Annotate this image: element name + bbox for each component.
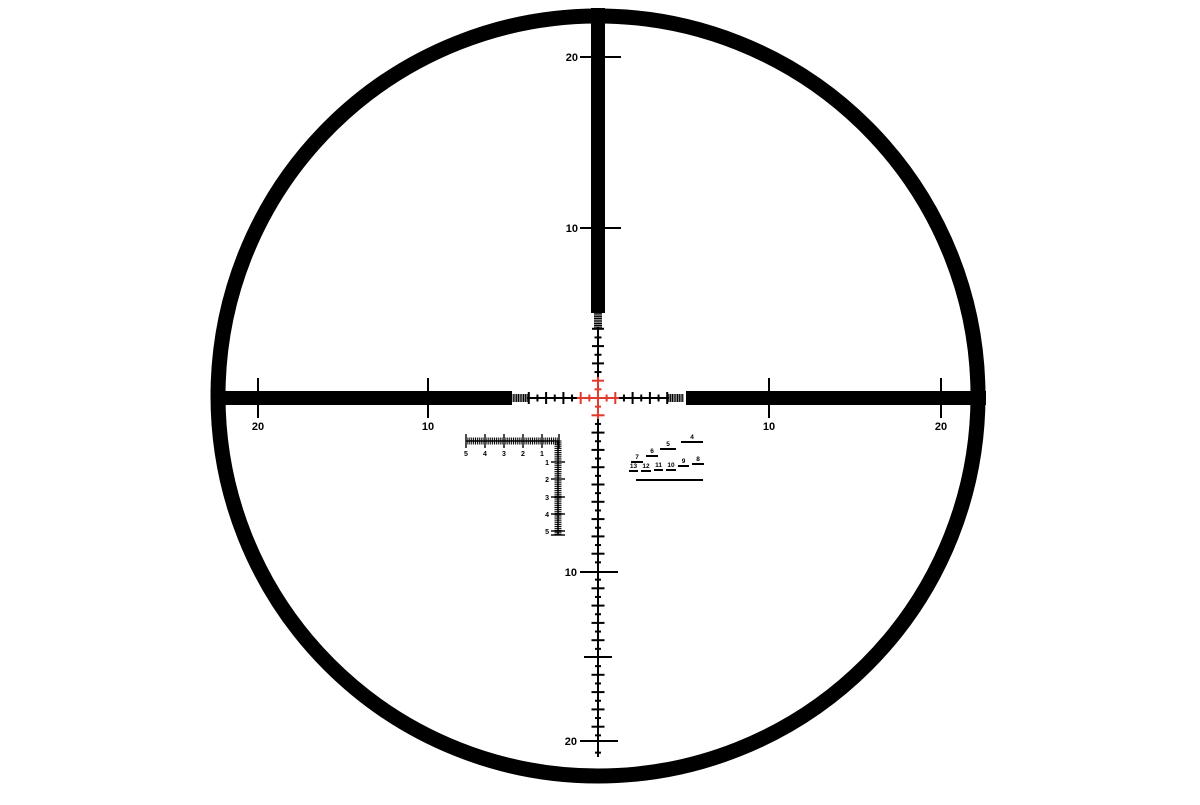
rangefinder-step-label: 4 — [690, 434, 694, 441]
stem-hash-label: 20 — [565, 736, 577, 748]
rangefinder-step-label: 12 — [642, 463, 650, 470]
rangefinder-step-label: 11 — [655, 462, 662, 469]
post-hash-label: 20 — [566, 52, 578, 64]
lscale-v-label: 2 — [545, 477, 549, 484]
rangefinder-step-label: 7 — [635, 454, 639, 461]
rangefinder-step-label: 9 — [682, 458, 686, 465]
post-hash-label: 10 — [422, 421, 434, 433]
rangefinder-step-label: 8 — [696, 456, 700, 463]
stem-hash-label: 10 — [565, 567, 577, 579]
lscale-h-label: 4 — [483, 451, 487, 458]
rangefinder-step-label: 5 — [666, 441, 670, 448]
lscale-h-label: 1 — [540, 451, 544, 458]
post-left — [211, 391, 512, 405]
lscale-v-label: 1 — [545, 460, 549, 467]
lscale-h-label: 2 — [521, 451, 525, 458]
rangefinder-step-label: 6 — [650, 448, 654, 455]
lscale-v-label: 4 — [545, 512, 549, 519]
lscale-v-label: 5 — [545, 529, 549, 536]
lscale-v-label: 3 — [545, 495, 549, 502]
rangefinder-step-label: 13 — [630, 463, 638, 470]
reticle-view: 2010201010201020543211234545678910111213 — [0, 0, 1200, 800]
rangefinder-step-label: 10 — [667, 462, 675, 469]
scope-reticle: 2010201010201020543211234545678910111213 — [0, 0, 1200, 800]
lscale-h-label: 3 — [502, 451, 506, 458]
post-hash-label: 10 — [763, 421, 775, 433]
post-top — [591, 8, 605, 313]
post-hash-label: 20 — [252, 421, 264, 433]
lscale-h-label: 5 — [464, 451, 468, 458]
post-hash-label: 20 — [935, 421, 947, 433]
post-hash-label: 10 — [566, 223, 578, 235]
